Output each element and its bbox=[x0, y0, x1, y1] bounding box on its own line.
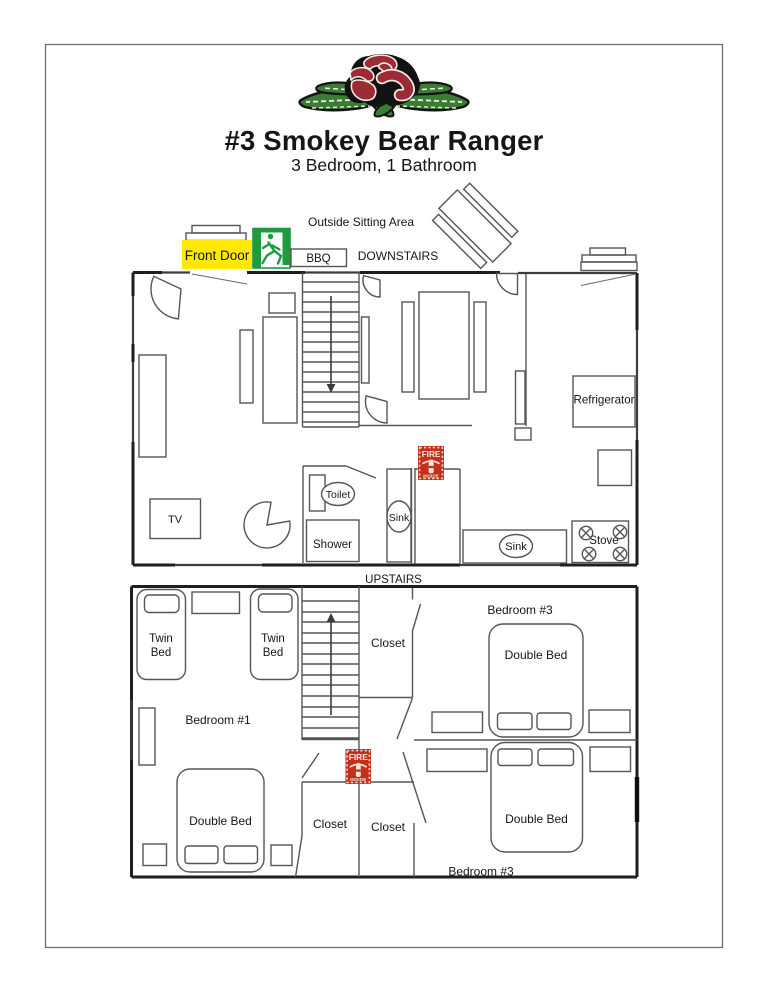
svg-text:UPSTAIRS: UPSTAIRS bbox=[365, 574, 422, 586]
svg-text:Stove: Stove bbox=[589, 535, 618, 547]
svg-text:FIRE: FIRE bbox=[422, 450, 441, 459]
svg-text:FIRE: FIRE bbox=[349, 752, 368, 762]
svg-text:Closet: Closet bbox=[371, 636, 406, 650]
svg-text:Bed: Bed bbox=[151, 647, 171, 659]
svg-text:Closet: Closet bbox=[371, 820, 406, 834]
svg-text:Refrigerator: Refrigerator bbox=[574, 393, 635, 407]
svg-text:Sink: Sink bbox=[505, 541, 527, 553]
svg-text:Twin: Twin bbox=[149, 633, 173, 645]
svg-text:#3 Smokey Bear Ranger: #3 Smokey Bear Ranger bbox=[224, 125, 543, 156]
svg-text:Outside Sitting Area: Outside Sitting Area bbox=[308, 215, 414, 229]
svg-text:INSIDE: INSIDE bbox=[350, 777, 367, 783]
svg-text:Bedroom #3: Bedroom #3 bbox=[487, 603, 553, 617]
svg-text:Twin: Twin bbox=[261, 633, 285, 645]
svg-text:Shower: Shower bbox=[313, 539, 352, 551]
svg-text:Front Door: Front Door bbox=[185, 248, 250, 263]
svg-text:Bed: Bed bbox=[263, 647, 283, 659]
svg-text:Bedroom #1: Bedroom #1 bbox=[185, 713, 251, 727]
svg-text:DOWNSTAIRS: DOWNSTAIRS bbox=[358, 249, 438, 263]
svg-text:BBQ: BBQ bbox=[306, 253, 330, 265]
svg-text:Double Bed: Double Bed bbox=[505, 648, 568, 662]
svg-text:Double Bed: Double Bed bbox=[189, 814, 252, 828]
svg-text:Double Bed: Double Bed bbox=[505, 812, 568, 826]
svg-text:Sink: Sink bbox=[389, 512, 410, 524]
svg-text:Closet: Closet bbox=[313, 817, 348, 831]
svg-text:TV: TV bbox=[168, 514, 183, 526]
svg-text:3 Bedroom, 1 Bathroom: 3 Bedroom, 1 Bathroom bbox=[291, 155, 477, 175]
svg-text:Toilet: Toilet bbox=[326, 489, 351, 501]
svg-text:INSIDE: INSIDE bbox=[423, 473, 439, 479]
svg-text:Bedroom #3: Bedroom #3 bbox=[448, 865, 514, 879]
